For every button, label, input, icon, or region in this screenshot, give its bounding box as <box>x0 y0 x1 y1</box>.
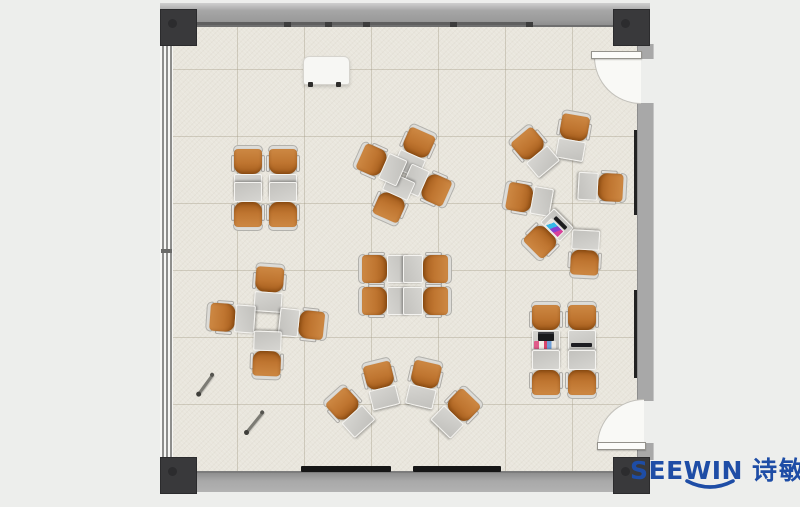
corner-post <box>160 9 197 46</box>
wall-mount-tick <box>284 22 291 27</box>
desk <box>253 331 282 352</box>
chair-desk-unit <box>566 349 598 399</box>
desk <box>234 182 262 202</box>
chair-desk-unit <box>566 301 598 351</box>
chair-seat <box>298 310 326 340</box>
chair <box>268 145 298 174</box>
corner-post <box>160 457 197 494</box>
whiteboard-caster <box>336 82 341 87</box>
chair-seat <box>597 173 623 202</box>
window-wall-left <box>160 45 173 458</box>
desk <box>269 182 297 202</box>
chair-desk-unit <box>402 253 452 285</box>
chair <box>297 309 329 342</box>
chair-seat <box>362 287 387 315</box>
chair-seat <box>234 202 262 227</box>
wall-bottom <box>160 471 650 492</box>
wall-mount-tick <box>526 22 533 27</box>
desk <box>568 330 596 350</box>
chair <box>254 262 286 293</box>
chair <box>569 249 600 280</box>
chair-desk-unit <box>276 305 329 342</box>
desk <box>568 350 596 370</box>
glass-panel-frame <box>634 130 637 215</box>
chair-seat <box>423 287 448 315</box>
desk <box>532 330 560 350</box>
chair <box>597 172 628 203</box>
corner-post <box>613 9 650 46</box>
chair-desk-unit <box>358 285 408 317</box>
floor-plan: SEEWIN诗敏 <box>0 0 800 507</box>
logo-smile-icon <box>684 479 736 493</box>
chair <box>531 370 561 399</box>
chair-seat <box>532 305 560 330</box>
chair-seat <box>209 303 236 333</box>
wall-mount-tick <box>363 22 370 27</box>
chair-desk-unit <box>402 285 452 317</box>
wall-top <box>160 3 650 27</box>
chair-desk-unit <box>530 349 562 399</box>
door-leaf <box>591 51 642 59</box>
baseboard-heater <box>301 466 391 472</box>
baseboard-heater <box>413 466 501 472</box>
desk <box>577 172 598 201</box>
chair-desk-unit <box>232 181 264 231</box>
chair <box>251 350 282 380</box>
chair-desk-unit <box>530 301 562 351</box>
chair-desk-unit <box>205 300 257 335</box>
tablet-icon <box>571 343 592 347</box>
chair-seat <box>568 370 596 395</box>
chair-seat <box>252 351 281 377</box>
desk <box>403 287 423 315</box>
chair <box>423 286 452 316</box>
window-mullion-joint <box>161 249 172 253</box>
chair-seat <box>269 149 297 174</box>
wall-right-segment <box>637 103 654 401</box>
chair-seat <box>532 370 560 395</box>
chair <box>358 286 387 316</box>
chair-desk-unit <box>576 170 628 205</box>
chair <box>233 145 263 174</box>
desk <box>571 229 600 250</box>
chair-desk-unit <box>358 253 408 285</box>
wall-mount-tick <box>450 22 457 27</box>
wall-top-inner-edge <box>197 22 527 25</box>
chair-seat <box>255 266 285 293</box>
laptop-icon <box>538 332 554 341</box>
chair-seat <box>568 305 596 330</box>
wall-mount-tick <box>325 22 332 27</box>
mobile-whiteboard <box>303 56 350 85</box>
chair-seat <box>570 249 599 275</box>
logo-cjk-text: 诗敏 <box>752 456 800 485</box>
chair <box>423 254 452 284</box>
chair <box>567 370 597 399</box>
chair <box>358 254 387 284</box>
whiteboard-caster <box>308 82 313 87</box>
chair <box>233 202 263 231</box>
papers-icon <box>534 341 556 349</box>
desk <box>532 350 560 370</box>
chair <box>531 301 561 330</box>
chair-seat <box>423 255 448 283</box>
chair-desk-unit <box>250 329 284 380</box>
door-leaf <box>597 442 646 450</box>
chair <box>567 301 597 330</box>
chair <box>205 301 236 333</box>
chair-seat <box>269 202 297 227</box>
chair-seat <box>234 149 262 174</box>
chair-desk-unit <box>267 181 299 231</box>
desk <box>403 255 423 283</box>
chair <box>268 202 298 231</box>
glass-panel-frame <box>634 290 637 378</box>
chair-seat <box>362 255 387 283</box>
chair-desk-unit <box>568 228 603 280</box>
brand-logo: SEEWIN诗敏 <box>630 451 798 497</box>
